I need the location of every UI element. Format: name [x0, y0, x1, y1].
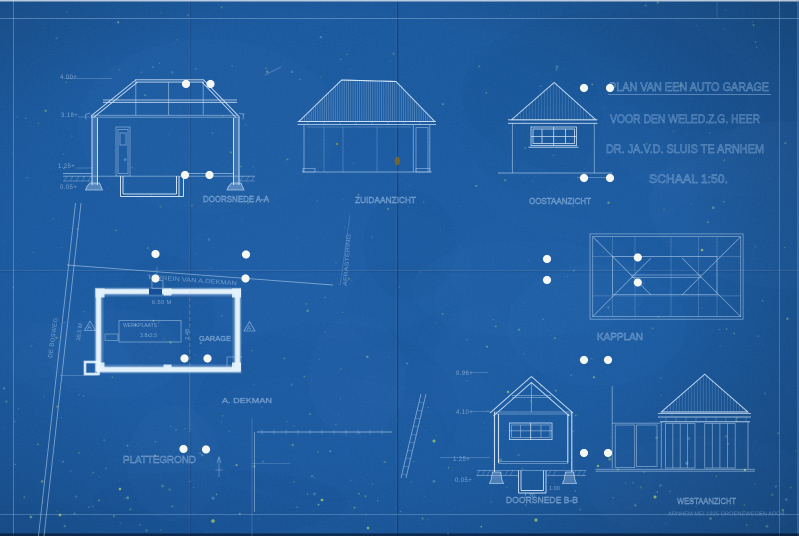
svg-text:3.8x2.5: 3.8x2.5: [140, 333, 157, 339]
svg-text:WERKPLAATS: WERKPLAATS: [123, 323, 158, 329]
svg-text:4.00+: 4.00+: [60, 75, 77, 81]
svg-text:6.50 M: 6.50 M: [152, 300, 172, 306]
svg-text:DOORSNEDE B-B: DOORSNEDE B-B: [506, 495, 578, 505]
svg-text:DR. JA.V.D. SLUIS TE ARNHEM: DR. JA.V.D. SLUIS TE ARNHEM: [606, 144, 764, 156]
svg-text:A. DEKMAN: A. DEKMAN: [222, 398, 272, 405]
svg-text:ZUIDAANZICHT: ZUIDAANZICHT: [355, 195, 416, 205]
svg-text:1.25+: 1.25+: [58, 164, 75, 170]
svg-text:4.10+: 4.10+: [456, 410, 473, 416]
svg-text:SCHAAL 1:50.: SCHAAL 1:50.: [649, 174, 728, 186]
svg-text:0.05+: 0.05+: [455, 478, 472, 484]
svg-text:2.48: 2.48: [185, 329, 191, 340]
svg-text:PLATTEGROND: PLATTEGROND: [123, 454, 196, 466]
svg-text:PLAN VAN EEN AUTO GARAGE: PLAN VAN EEN AUTO GARAGE: [609, 82, 769, 94]
svg-text:0.96+: 0.96+: [456, 371, 473, 377]
svg-text:VOOR DEN WELED.Z.G. HEER: VOOR DEN WELED.Z.G. HEER: [610, 114, 760, 126]
svg-text:A: A: [87, 325, 92, 332]
svg-text:DOORSNEDE A-A: DOORSNEDE A-A: [203, 194, 269, 204]
svg-text:1.00: 1.00: [549, 486, 560, 492]
svg-text:1.25+: 1.25+: [453, 457, 470, 463]
svg-text:0.05+: 0.05+: [60, 185, 77, 191]
svg-text:GARAGE: GARAGE: [199, 336, 231, 343]
svg-text:OOSTAANZICHT: OOSTAANZICHT: [529, 196, 591, 206]
svg-text:KAPPLAN: KAPPLAN: [597, 331, 643, 343]
svg-text:3.18+: 3.18+: [61, 113, 78, 119]
svg-text:ARNHEM MEI 1925 GROENEWEGEN AR: ARNHEM MEI 1925 GROENEWEGEN ARCH.: [668, 512, 786, 518]
svg-text:A: A: [247, 325, 252, 332]
svg-text:WESTAANZICHT: WESTAANZICHT: [677, 496, 736, 506]
